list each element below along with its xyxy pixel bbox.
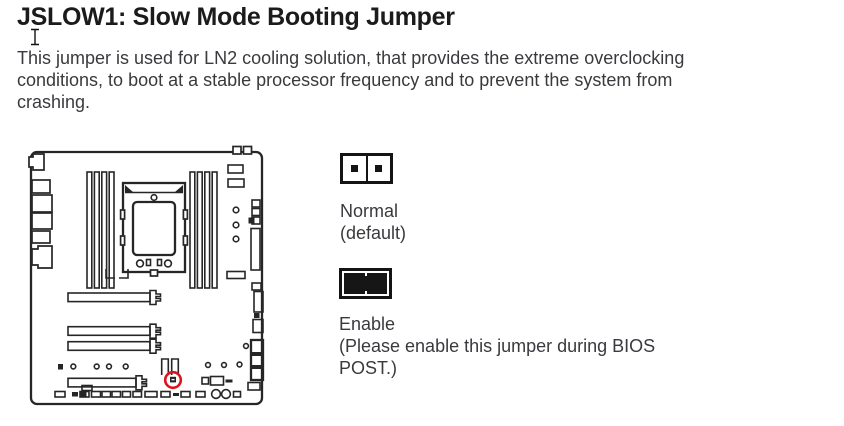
- description-line: crashing.: [17, 91, 684, 113]
- pin-icon: [375, 165, 382, 172]
- ram-slots-right: [190, 172, 217, 288]
- state-label: Normal: [340, 200, 406, 222]
- manual-page: JSLOW1: Slow Mode Booting Jumper This ju…: [0, 0, 844, 426]
- state-label: Enable: [339, 313, 655, 335]
- description-line: This jumper is used for LN2 cooling solu…: [17, 47, 684, 69]
- mounting-holes-right: [233, 207, 239, 242]
- rear-io-ports: [29, 154, 52, 268]
- jumper-open-icon: [340, 153, 393, 184]
- jumper-pin-cell: [343, 156, 366, 181]
- ram-slots-left: [87, 172, 114, 288]
- power-connectors: [228, 165, 244, 187]
- text-cursor-icon: [29, 28, 41, 46]
- page-title: JSLOW1: Slow Mode Booting Jumper: [17, 3, 455, 32]
- cap-notch: [365, 291, 367, 294]
- mounting-holes-bottom: [58, 362, 242, 369]
- state-note: (Please enable this jumper during BIOS: [339, 335, 655, 357]
- jslow1-jumper: [165, 372, 181, 388]
- state-note: POST.): [339, 357, 655, 379]
- description-line: conditions, to boot at a stable processo…: [17, 69, 684, 91]
- cpu-socket: [121, 183, 188, 276]
- jumper-state-enable: Enable (Please enable this jumper during…: [339, 268, 655, 379]
- jumper-pin-cell: [366, 156, 391, 181]
- jumper-capped-icon: [339, 268, 392, 299]
- motherboard-diagram: [28, 143, 268, 415]
- pcie-slots: [68, 291, 161, 390]
- pin-icon: [351, 165, 358, 172]
- state-note: (default): [340, 222, 406, 244]
- jumper-state-normal: Normal (default): [340, 153, 406, 244]
- right-edge-headers: [227, 200, 263, 390]
- description: This jumper is used for LN2 cooling solu…: [17, 47, 684, 113]
- cap-notch: [365, 273, 367, 276]
